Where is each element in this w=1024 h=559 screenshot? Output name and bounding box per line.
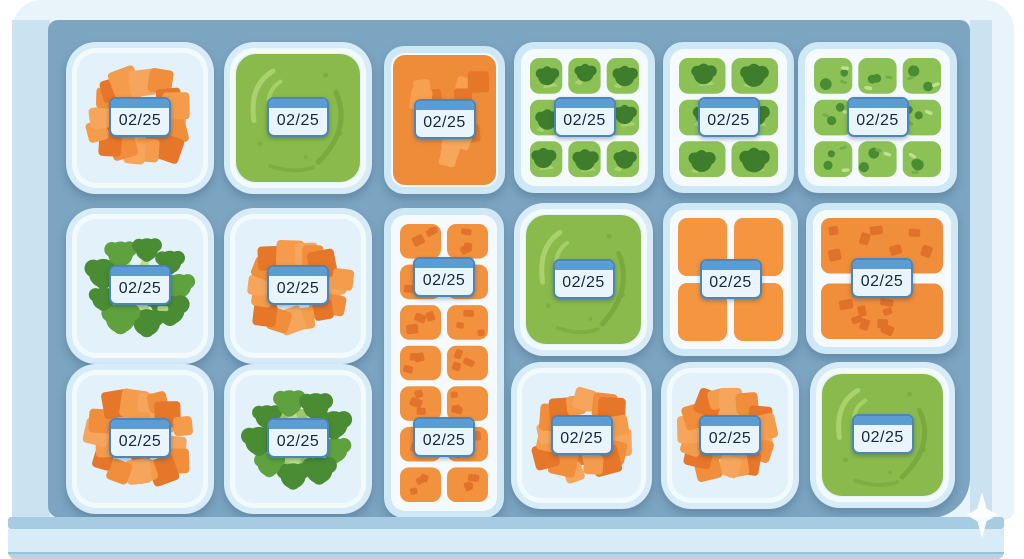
- date-label: 02/25: [414, 99, 476, 139]
- label-header-bar: [555, 261, 613, 270]
- label-header-bar: [553, 417, 611, 426]
- date-label-text: 02/25: [854, 425, 912, 451]
- label-header-bar: [700, 99, 758, 108]
- label-header-bar: [556, 99, 614, 108]
- date-label: 02/25: [551, 415, 613, 455]
- label-header-bar: [111, 99, 169, 108]
- label-header-bar: [849, 99, 907, 108]
- label-header-bar: [415, 419, 473, 428]
- container-r2c5: 02/25: [663, 203, 798, 356]
- container-r2c2: 02/25: [224, 208, 372, 364]
- container-r3c6: 02/25: [810, 362, 955, 508]
- sparkle-watermark-icon: [965, 492, 999, 538]
- container-r1c4: 02/25: [514, 42, 655, 193]
- date-label: 02/25: [413, 417, 475, 457]
- date-label: 02/25: [699, 415, 761, 455]
- date-label-text: 02/25: [111, 276, 169, 302]
- date-label: 02/25: [109, 418, 171, 458]
- date-label-text: 02/25: [702, 270, 760, 296]
- label-header-bar: [111, 267, 169, 276]
- date-label-text: 02/25: [269, 429, 327, 455]
- date-label: 02/25: [553, 259, 615, 299]
- label-header-bar: [415, 259, 473, 268]
- container-r2c4: 02/25: [514, 203, 653, 356]
- date-label-text: 02/25: [111, 429, 169, 455]
- drawer-right-wall: [970, 20, 992, 518]
- date-label: 02/25: [700, 259, 762, 299]
- date-label: 02/25: [267, 265, 329, 305]
- date-label-text: 02/25: [269, 276, 327, 302]
- label-header-bar: [854, 416, 912, 425]
- container-r2c1: 02/25: [66, 208, 214, 364]
- drawer-lip-top: [8, 517, 1004, 529]
- container-r1c6: 02/25: [798, 42, 957, 193]
- date-label: 02/25: [109, 265, 171, 305]
- container-r2c6: 02/25: [806, 203, 958, 354]
- date-label-text: 02/25: [849, 108, 907, 134]
- date-label-text: 02/25: [556, 108, 614, 134]
- date-label-text: 02/25: [415, 428, 473, 454]
- date-label-text: 02/25: [269, 108, 327, 134]
- date-label-text: 02/25: [111, 108, 169, 134]
- label-header-bar: [269, 267, 327, 276]
- container-r2c3: 02/2502/25: [384, 208, 504, 518]
- label-header-bar: [416, 101, 474, 110]
- label-header-bar: [269, 420, 327, 429]
- label-header-bar: [701, 417, 759, 426]
- label-header-bar: [111, 420, 169, 429]
- date-label-text: 02/25: [555, 270, 613, 296]
- date-label-text: 02/25: [553, 426, 611, 452]
- date-label: 02/25: [267, 418, 329, 458]
- container-r3c5: 02/25: [661, 362, 799, 509]
- label-header-bar: [702, 261, 760, 270]
- date-label-text: 02/25: [415, 268, 473, 294]
- container-r1c3: 02/25: [384, 46, 505, 194]
- date-label-text: 02/25: [416, 110, 474, 136]
- date-label: 02/25: [109, 97, 171, 137]
- date-label-text: 02/25: [701, 426, 759, 452]
- drawer-bottom-edge: [8, 552, 1004, 559]
- date-label: 02/25: [554, 97, 616, 137]
- container-r3c4: 02/25: [511, 362, 652, 509]
- drawer-left-wall: [12, 20, 50, 518]
- container-r1c1: 02/25: [66, 42, 214, 194]
- container-r3c2: 02/25: [224, 364, 372, 514]
- date-label: 02/25: [852, 414, 914, 454]
- container-r3c1: 02/25: [66, 364, 214, 514]
- date-label: 02/25: [413, 257, 475, 297]
- label-header-bar: [853, 260, 911, 269]
- freezer-drawer-scene: 02/2502/2502/2502/2502/2502/2502/2502/25…: [0, 0, 1024, 559]
- date-label: 02/25: [698, 97, 760, 137]
- drawer-front-panel: [8, 529, 1004, 552]
- container-r1c2: 02/25: [224, 42, 372, 194]
- date-label: 02/25: [847, 97, 909, 137]
- date-label: 02/25: [851, 258, 913, 298]
- date-label: 02/25: [267, 97, 329, 137]
- label-header-bar: [269, 99, 327, 108]
- container-r1c5: 02/25: [663, 42, 794, 193]
- date-label-text: 02/25: [700, 108, 758, 134]
- date-label-text: 02/25: [853, 269, 911, 295]
